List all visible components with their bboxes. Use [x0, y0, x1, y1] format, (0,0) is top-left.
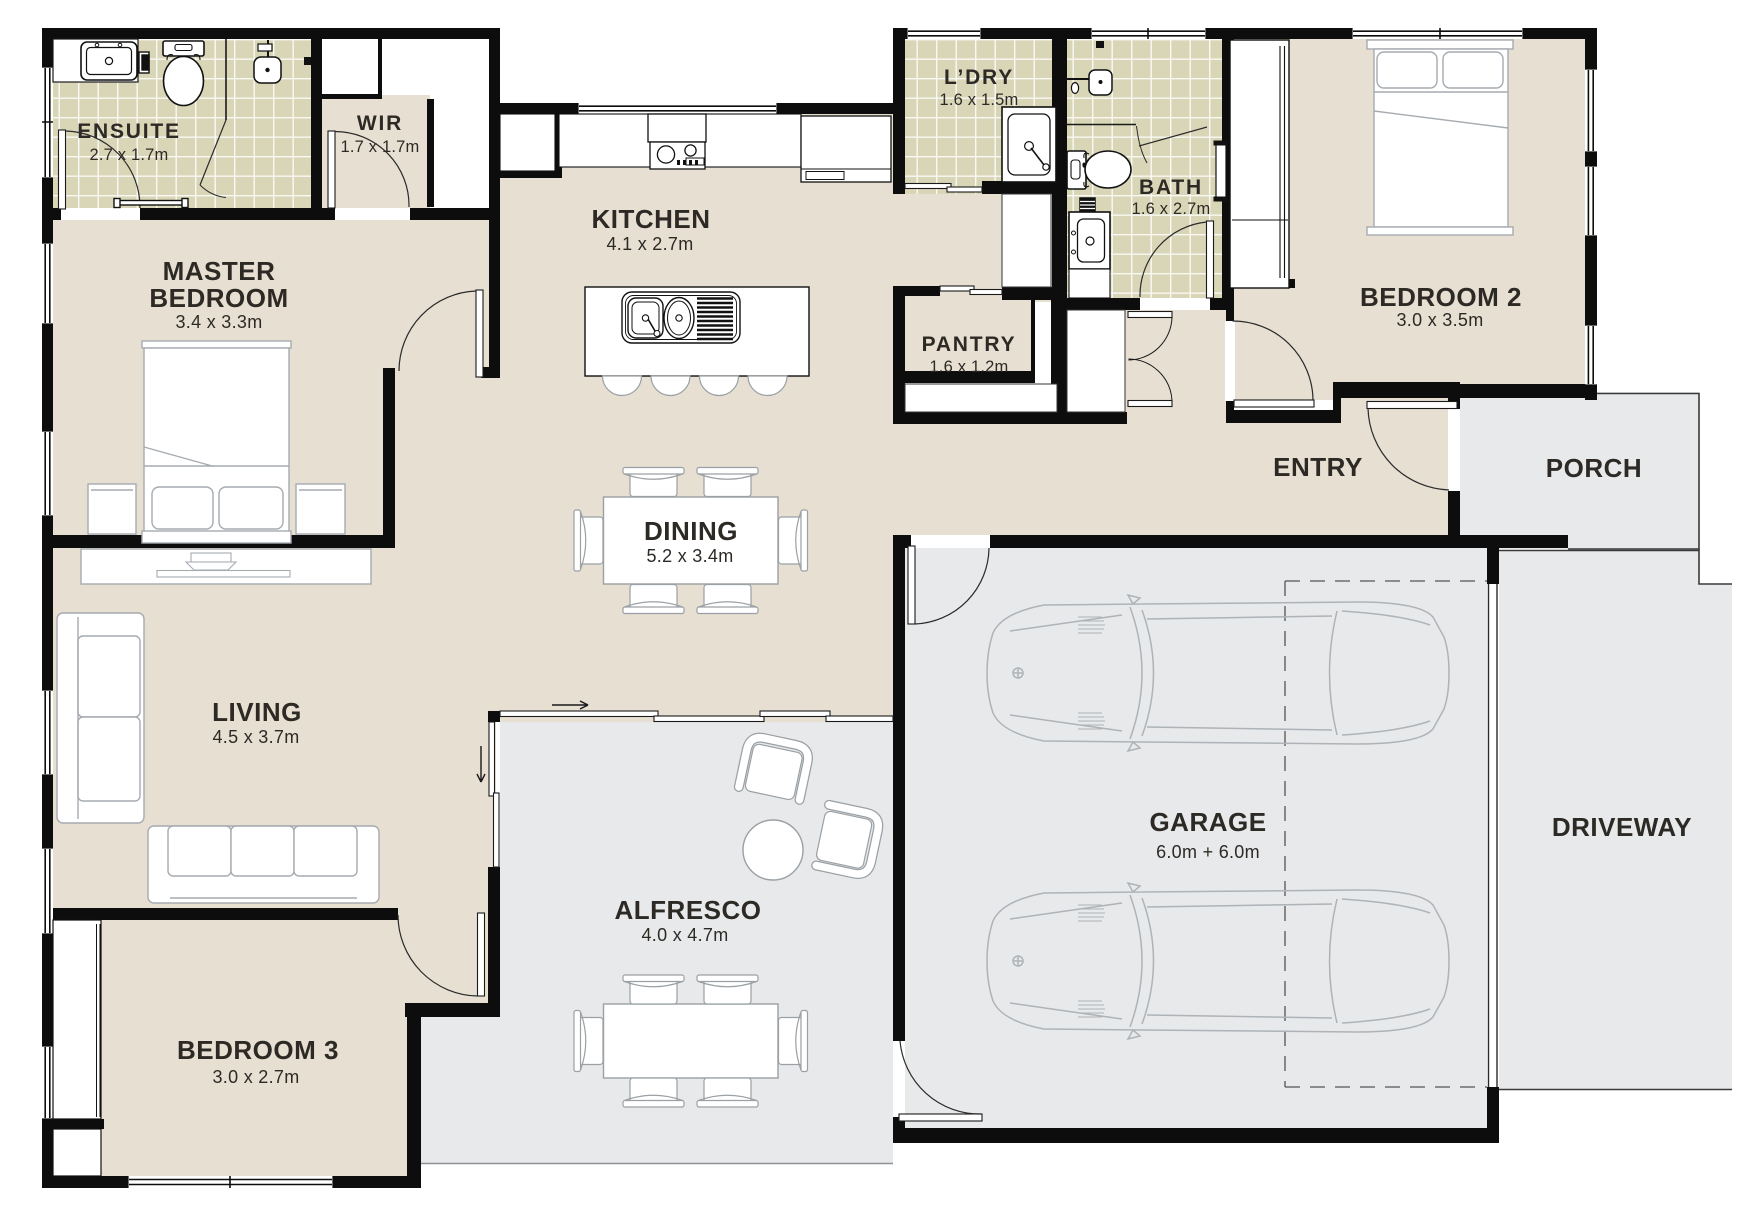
svg-text:3.0 x 2.7m: 3.0 x 2.7m: [212, 1067, 299, 1087]
svg-text:1.6 x 1.5m: 1.6 x 1.5m: [939, 91, 1018, 109]
svg-text:LIVING: LIVING: [212, 697, 302, 727]
svg-text:3.4 x 3.3m: 3.4 x 3.3m: [175, 312, 262, 332]
svg-text:MASTER: MASTER: [163, 256, 276, 286]
svg-text:4.1 x 2.7m: 4.1 x 2.7m: [606, 234, 693, 254]
svg-text:BEDROOM 2: BEDROOM 2: [1360, 282, 1522, 312]
svg-text:GARAGE: GARAGE: [1149, 807, 1266, 837]
svg-text:DINING: DINING: [644, 516, 738, 546]
svg-text:1.6 x 1.2m: 1.6 x 1.2m: [929, 358, 1008, 376]
svg-text:BEDROOM 3: BEDROOM 3: [177, 1035, 339, 1065]
svg-text:1.7 x 1.7m: 1.7 x 1.7m: [340, 138, 419, 156]
svg-text:BATH: BATH: [1139, 176, 1203, 199]
svg-text:6.0m + 6.0m: 6.0m + 6.0m: [1156, 842, 1260, 862]
svg-text:1.6 x 2.7m: 1.6 x 2.7m: [1131, 200, 1210, 218]
svg-text:5.2 x 3.4m: 5.2 x 3.4m: [646, 546, 733, 566]
svg-text:ALFRESCO: ALFRESCO: [615, 895, 762, 925]
svg-text:4.5 x 3.7m: 4.5 x 3.7m: [212, 727, 299, 747]
svg-text:ENSUITE: ENSUITE: [77, 120, 181, 143]
svg-text:2.7 x 1.7m: 2.7 x 1.7m: [89, 146, 168, 164]
svg-text:4.0 x 4.7m: 4.0 x 4.7m: [641, 925, 728, 945]
svg-text:PANTRY: PANTRY: [922, 333, 1017, 356]
svg-text:PORCH: PORCH: [1546, 453, 1642, 483]
svg-text:BEDROOM: BEDROOM: [149, 283, 288, 313]
svg-text:ENTRY: ENTRY: [1273, 452, 1363, 482]
svg-text:L’DRY: L’DRY: [944, 66, 1014, 89]
svg-text:KITCHEN: KITCHEN: [591, 204, 710, 234]
svg-text:WIR: WIR: [357, 112, 403, 135]
svg-text:3.0 x 3.5m: 3.0 x 3.5m: [1396, 310, 1483, 330]
svg-text:DRIVEWAY: DRIVEWAY: [1552, 812, 1692, 842]
